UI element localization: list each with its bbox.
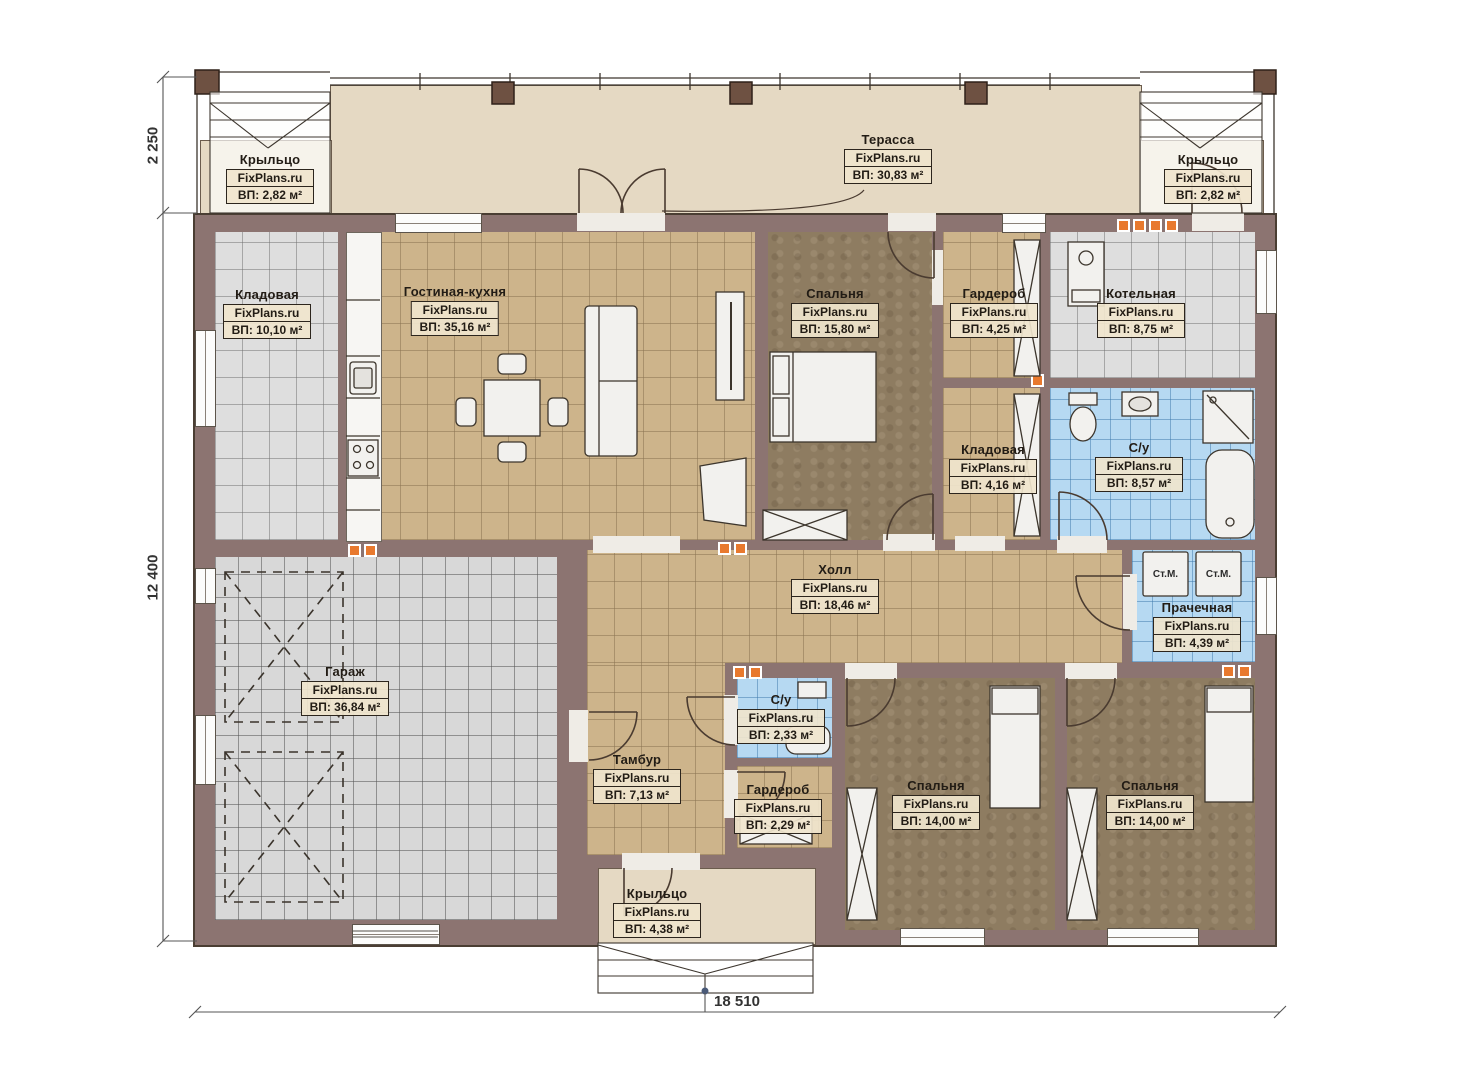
vent-hall-2 (734, 542, 747, 555)
vent-boiler-4 (1165, 219, 1178, 232)
room-area: ВП: 2,33 м² (738, 727, 824, 743)
door-opening-terrace (577, 213, 665, 231)
room-area: ВП: 36,84 м² (302, 699, 388, 715)
room-garage (215, 557, 557, 920)
window-garage-bottom (352, 924, 440, 945)
room-name: Гардероб (950, 286, 1038, 301)
opening-bathroom-small (724, 695, 738, 745)
vent-bath-small-2 (749, 666, 762, 679)
watermark: FixPlans.ru (738, 710, 824, 727)
label-laundry: Прачечная FixPlans.ruВП: 4,39 м² (1153, 600, 1241, 652)
opening-garage-vestibule (569, 710, 588, 762)
room-name: Гостиная-кухня (404, 284, 506, 299)
room-area: ВП: 4,39 м² (1154, 635, 1240, 651)
label-living-kitchen: Гостиная-кухня FixPlans.ruВП: 35,16 м² (404, 284, 506, 336)
vent-garage-1 (348, 544, 361, 557)
watermark: FixPlans.ru (1096, 458, 1182, 475)
room-area: ВП: 14,00 м² (893, 813, 979, 829)
room-area: ВП: 18,46 м² (792, 597, 878, 613)
opening-bedroom-right (1065, 663, 1117, 679)
porch-steps-bottom (598, 943, 813, 995)
watermark: FixPlans.ru (1098, 304, 1184, 321)
watermark: FixPlans.ru (1154, 618, 1240, 635)
label-garage: Гараж FixPlans.ruВП: 36,84 м² (301, 664, 389, 716)
opening-living-hall (593, 536, 680, 553)
room-name: Спальня (791, 286, 879, 301)
room-area: ВП: 4,16 м² (950, 477, 1036, 493)
watermark: FixPlans.ru (893, 796, 979, 813)
opening-bedroom-wardrobe-top (932, 250, 943, 305)
room-area: ВП: 2,82 м² (1165, 187, 1251, 203)
room-name: Гараж (301, 664, 389, 679)
washing-machine-2-label: Ст.М. (1196, 552, 1241, 596)
label-storage-mid: Кладовая FixPlans.ruВП: 4,16 м² (949, 442, 1037, 494)
room-name: Спальня (892, 778, 980, 793)
opening-bedroom-mid (845, 663, 897, 679)
room-name: Кладовая (949, 442, 1037, 457)
room-area: ВП: 7,13 м² (594, 787, 680, 803)
vent-bath-small-1 (733, 666, 746, 679)
dimension-height-top: 2 250 (145, 118, 162, 174)
watermark: FixPlans.ru (412, 302, 498, 319)
room-name: С/у (1095, 440, 1183, 455)
room-area: ВП: 10,10 м² (224, 322, 310, 338)
room-name: С/у (737, 692, 825, 707)
vent-boiler-3 (1149, 219, 1162, 232)
washing-machine-1-label: Ст.М. (1143, 552, 1188, 596)
vent-laundry-1 (1222, 665, 1235, 678)
room-area: ВП: 2,29 м² (735, 817, 821, 833)
room-name: Спальня (1106, 778, 1194, 793)
label-bathroom-big: С/у FixPlans.ruВП: 8,57 м² (1095, 440, 1183, 492)
room-name: Крыльцо (1164, 152, 1252, 167)
terrace-floor (330, 85, 1142, 217)
room-area: ВП: 2,82 м² (227, 187, 313, 203)
window-bedroom-mid-bottom (900, 928, 985, 946)
watermark: FixPlans.ru (951, 304, 1037, 321)
label-porch-bottom: Крыльцо FixPlans.ruВП: 4,38 м² (613, 886, 701, 938)
room-area: ВП: 15,80 м² (792, 321, 878, 337)
room-name: Котельная (1097, 286, 1185, 301)
opening-laundry (1123, 574, 1137, 630)
room-name: Тамбур (593, 752, 681, 767)
label-porch-top-left: Крыльцо FixPlans.ruВП: 2,82 м² (226, 152, 314, 204)
room-name: Кладовая (223, 287, 311, 302)
label-terrace: Терасса FixPlans.ruВП: 30,83 м² (844, 132, 932, 184)
watermark: FixPlans.ru (614, 904, 700, 921)
window-garage-left-2 (195, 715, 216, 785)
room-name: Крыльцо (226, 152, 314, 167)
opening-bedroom-top-hall (883, 534, 935, 551)
room-name: Крыльцо (613, 886, 701, 901)
room-name: Гардероб (734, 782, 822, 797)
watermark: FixPlans.ru (792, 580, 878, 597)
window-laundry-right (1256, 577, 1277, 635)
dimension-height-main: 12 400 (145, 545, 162, 611)
label-wardrobe-small: Гардероб FixPlans.ruВП: 2,29 м² (734, 782, 822, 834)
watermark: FixPlans.ru (845, 150, 931, 167)
room-area: ВП: 4,38 м² (614, 921, 700, 937)
label-bedroom-top: Спальня FixPlans.ruВП: 15,80 м² (791, 286, 879, 338)
vent-hall-1 (718, 542, 731, 555)
label-vestibule: Тамбур FixPlans.ruВП: 7,13 м² (593, 752, 681, 804)
kitchen-counter (346, 232, 382, 542)
label-hall: Холл FixPlans.ruВП: 18,46 м² (791, 562, 879, 614)
room-name: Терасса (844, 132, 932, 147)
label-bedroom-mid: Спальня FixPlans.ruВП: 14,00 м² (892, 778, 980, 830)
room-bedroom-top (768, 232, 932, 540)
door-opening-bedroom-terrace (888, 213, 936, 231)
watermark: FixPlans.ru (224, 305, 310, 322)
label-bathroom-small: С/у FixPlans.ruВП: 2,33 м² (737, 692, 825, 744)
room-area: ВП: 8,57 м² (1096, 475, 1182, 491)
window-bedroom-right-bottom (1107, 928, 1199, 946)
watermark: FixPlans.ru (302, 682, 388, 699)
opening-storage-mid (955, 536, 1005, 551)
front-door-opening (622, 853, 700, 870)
dimension-width-total: 18 510 (700, 993, 774, 1010)
room-area: ВП: 8,75 м² (1098, 321, 1184, 337)
watermark: FixPlans.ru (950, 460, 1036, 477)
door-opening-boiler-porch (1192, 213, 1244, 231)
room-area: ВП: 30,83 м² (845, 167, 931, 183)
vent-boiler-2 (1133, 219, 1146, 232)
room-living-kitchen (346, 232, 755, 540)
window-storage-left (195, 330, 216, 427)
window-garage-left-1 (195, 568, 216, 604)
watermark: FixPlans.ru (227, 170, 313, 187)
watermark: FixPlans.ru (792, 304, 878, 321)
opening-bathroom-big (1057, 536, 1107, 553)
label-wardrobe-top: Гардероб FixPlans.ruВП: 4,25 м² (950, 286, 1038, 338)
label-boiler-room: Котельная FixPlans.ruВП: 8,75 м² (1097, 286, 1185, 338)
room-name: Прачечная (1153, 600, 1241, 615)
floor-plan: Крыльцо FixPlans.ruВП: 2,82 м² Терасса F… (0, 0, 1473, 1080)
vent-garage-2 (364, 544, 377, 557)
vent-boiler-1 (1117, 219, 1130, 232)
window-living-top (395, 213, 482, 233)
watermark: FixPlans.ru (1107, 796, 1193, 813)
watermark: FixPlans.ru (1165, 170, 1251, 187)
label-storage-top-left: Кладовая FixPlans.ruВП: 10,10 м² (223, 287, 311, 339)
room-area: ВП: 4,25 м² (951, 321, 1037, 337)
room-area: ВП: 35,16 м² (412, 319, 498, 335)
room-area: ВП: 14,00 м² (1107, 813, 1193, 829)
room-name: Холл (791, 562, 879, 577)
vent-laundry-2 (1238, 665, 1251, 678)
label-bedroom-right: Спальня FixPlans.ruВП: 14,00 м² (1106, 778, 1194, 830)
watermark: FixPlans.ru (594, 770, 680, 787)
window-wardrobe-top (1002, 213, 1046, 233)
vent-wardrobe-top (1031, 374, 1044, 387)
label-porch-top-right: Крыльцо FixPlans.ruВП: 2,82 м² (1164, 152, 1252, 204)
watermark: FixPlans.ru (735, 800, 821, 817)
room-storage-top-left (215, 232, 338, 540)
window-boiler-right (1256, 250, 1277, 314)
